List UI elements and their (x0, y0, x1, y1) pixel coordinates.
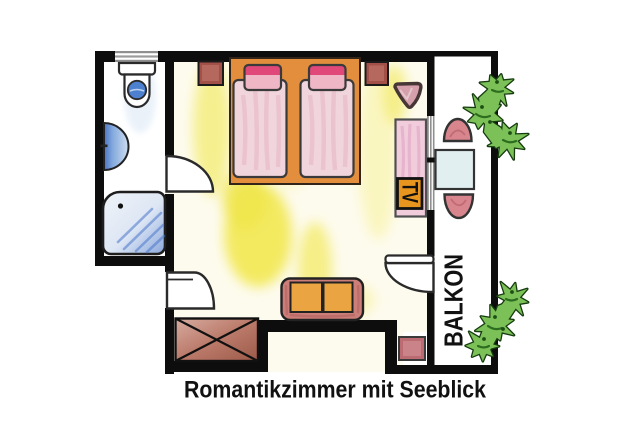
svg-text:BALKON: BALKON (439, 254, 469, 347)
svg-text:Romantikzimmer mit Seeblick: Romantikzimmer mit Seeblick (184, 377, 487, 404)
svg-text:TV: TV (398, 182, 423, 203)
